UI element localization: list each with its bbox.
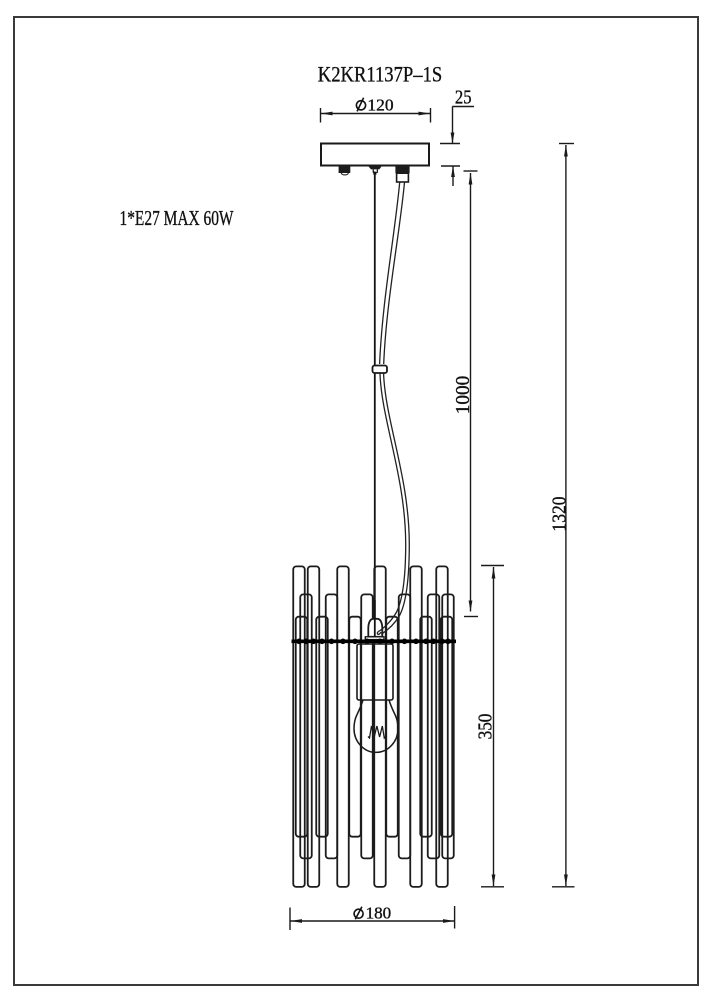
svg-text:1*E27 MAX 60W: 1*E27 MAX 60W bbox=[120, 206, 235, 230]
svg-text:350: 350 bbox=[475, 714, 496, 740]
svg-text:1000: 1000 bbox=[453, 376, 474, 415]
svg-text:120: 120 bbox=[367, 96, 393, 115]
svg-text:180: 180 bbox=[366, 904, 392, 923]
svg-text:25: 25 bbox=[455, 87, 472, 108]
svg-text:K2KR1137P–1S: K2KR1137P–1S bbox=[318, 62, 443, 87]
svg-text:1320: 1320 bbox=[549, 496, 570, 531]
